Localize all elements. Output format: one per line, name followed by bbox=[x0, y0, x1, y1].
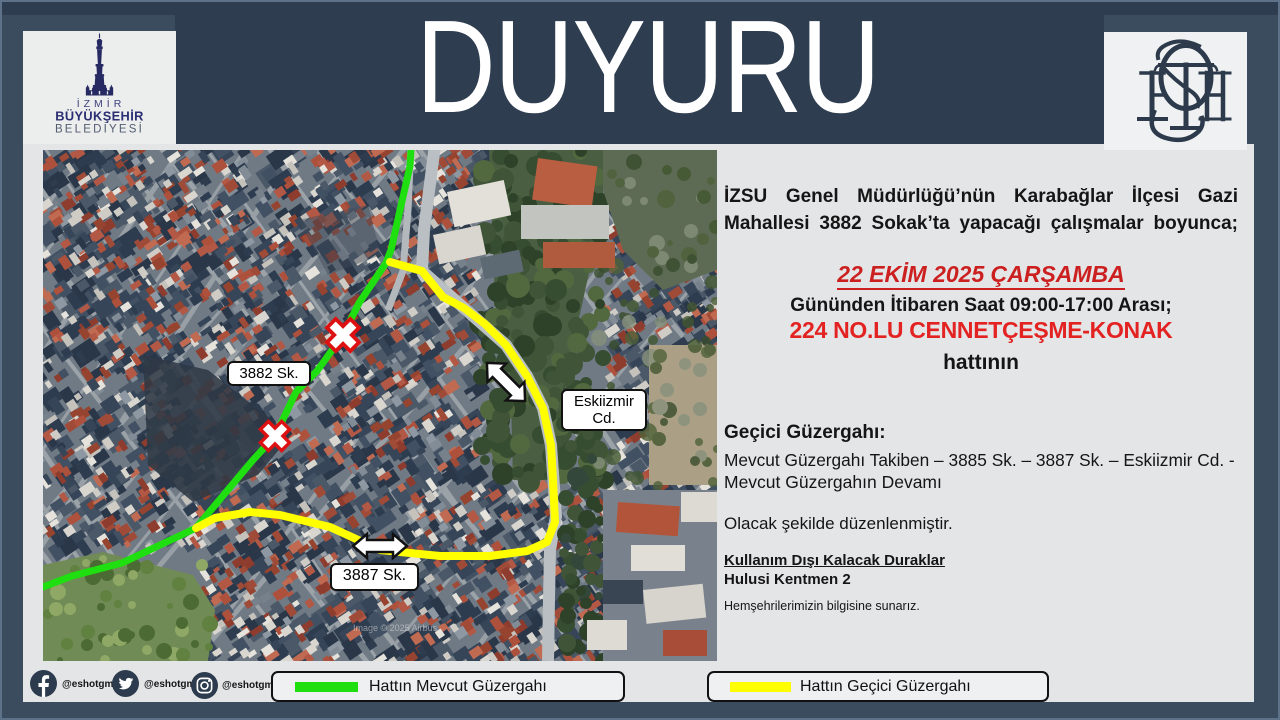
svg-text:BÜYÜKŞEHİR: BÜYÜKŞEHİR bbox=[55, 109, 144, 124]
svg-text:BELEDİYESİ: BELEDİYESİ bbox=[55, 123, 144, 136]
svg-text:Image © 2025 Airbus: Image © 2025 Airbus bbox=[353, 623, 438, 633]
